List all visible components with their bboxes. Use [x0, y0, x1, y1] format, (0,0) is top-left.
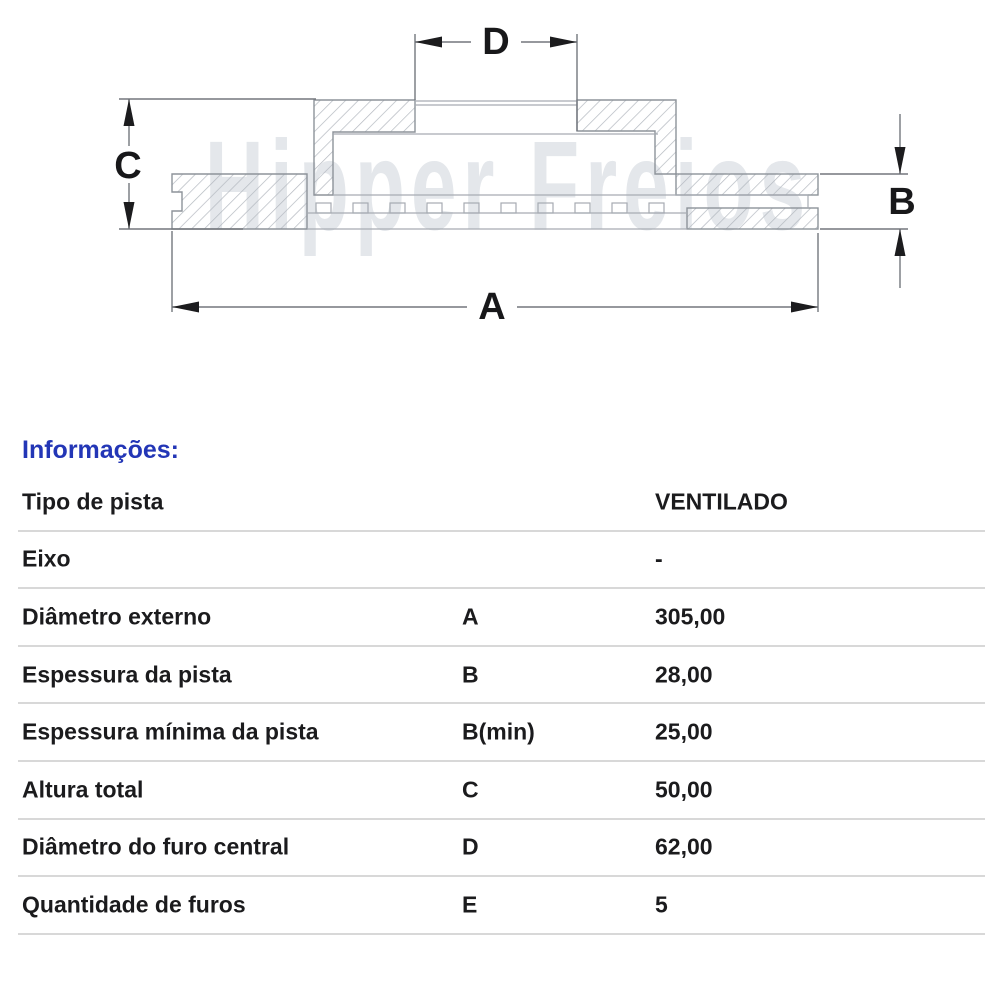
table-row: Tipo de pista VENTILADO: [18, 474, 985, 532]
dimension-b: B: [820, 114, 916, 288]
spec-label: Quantidade de furos: [22, 891, 246, 918]
table-row: Eixo -: [18, 532, 985, 590]
spec-label: Altura total: [22, 776, 143, 803]
table-row: Diâmetro do furo central D 62,00: [18, 820, 985, 878]
table-row: Altura total C 50,00: [18, 762, 985, 820]
spec-label: Diâmetro do furo central: [22, 834, 289, 861]
spec-label: Eixo: [22, 546, 71, 573]
spec-letter: D: [462, 834, 479, 861]
table-row: Espessura mínima da pista B(min) 25,00: [18, 704, 985, 762]
spec-letter: E: [462, 891, 477, 918]
dim-label-d: D: [482, 21, 509, 63]
spec-letter: B: [462, 661, 479, 688]
right-ring-upper-plate: [676, 174, 818, 195]
table-row: Quantidade de furos E 5: [18, 877, 985, 935]
spec-value: 62,00: [655, 834, 713, 861]
spec-label: Tipo de pista: [22, 488, 163, 515]
spec-letter: B(min): [462, 719, 535, 746]
product-spec-sheet: Hipper Freios: [0, 0, 1000, 1000]
spec-letter: C: [462, 776, 479, 803]
spec-value: VENTILADO: [655, 488, 788, 515]
info-section-title: Informações:: [22, 436, 179, 465]
spec-letter: A: [462, 603, 479, 630]
left-friction-ring: [172, 174, 307, 229]
spec-value: 50,00: [655, 776, 713, 803]
spec-value: 25,00: [655, 719, 713, 746]
table-row: Diâmetro externo A 305,00: [18, 589, 985, 647]
spec-table: Tipo de pista VENTILADO Eixo - Diâmetro …: [18, 474, 985, 935]
spec-label: Espessura da pista: [22, 661, 232, 688]
brake-disc-section-drawing: Hipper Freios: [0, 0, 1000, 400]
spec-label: Espessura mínima da pista: [22, 719, 319, 746]
dim-label-a: A: [478, 286, 505, 328]
spec-value: 5: [655, 891, 668, 918]
table-row: Espessura da pista B 28,00: [18, 647, 985, 705]
spec-label: Diâmetro externo: [22, 603, 211, 630]
spec-value: 28,00: [655, 661, 713, 688]
spec-value: -: [655, 546, 663, 573]
spec-value: 305,00: [655, 603, 725, 630]
right-ring-lower-plate: [687, 208, 818, 229]
dim-label-b: B: [888, 181, 915, 223]
dim-label-c: C: [114, 145, 141, 187]
